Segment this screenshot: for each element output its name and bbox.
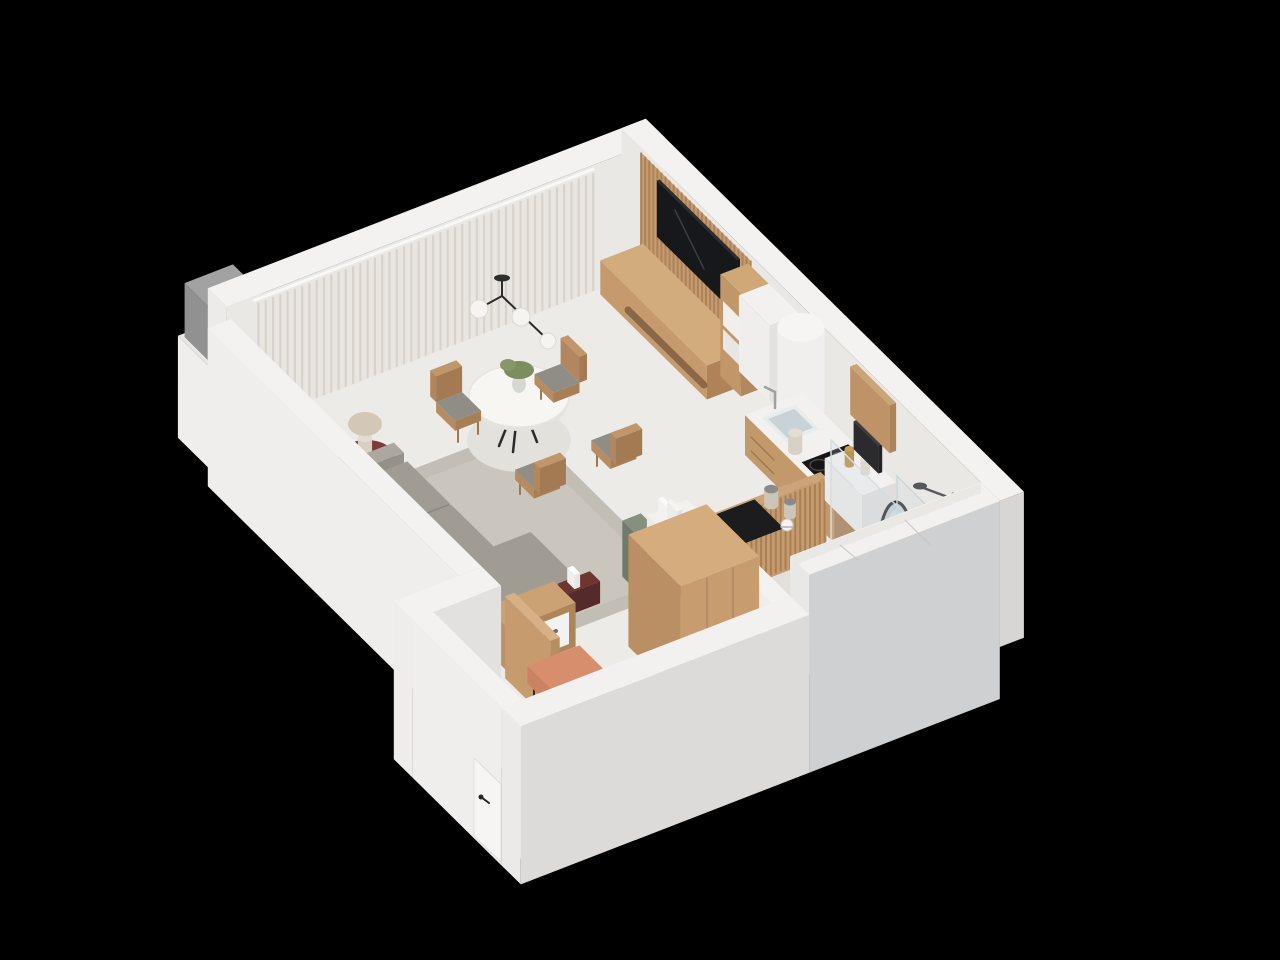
pendant-globe-1 (470, 300, 488, 318)
floorplan-svg (0, 0, 1280, 960)
chair-4-back-right (580, 354, 588, 383)
table-plant-2 (500, 359, 516, 371)
floorplan-render (0, 0, 1280, 960)
entry-jog-wall-left (394, 601, 413, 778)
toilet-paper-holder (781, 519, 793, 531)
spice-jar-1-top (764, 485, 778, 494)
kitchen-cup-top (788, 428, 802, 437)
water-heater-top (777, 313, 824, 342)
entry-front-wall-left (502, 708, 521, 885)
spice-jar-2-top (784, 498, 796, 505)
bath-dark-panel-right (878, 444, 882, 473)
pendant-globe-2 (512, 308, 530, 326)
lowboard-book-right (575, 573, 581, 589)
back-wall-right-right (1000, 492, 1024, 647)
dried-plant (348, 412, 382, 436)
bath-wall-cabinet-right (890, 403, 897, 454)
shower-head (913, 483, 927, 490)
pendant-globe-3 (540, 333, 556, 349)
laundry-bottle-1-top (845, 446, 854, 452)
